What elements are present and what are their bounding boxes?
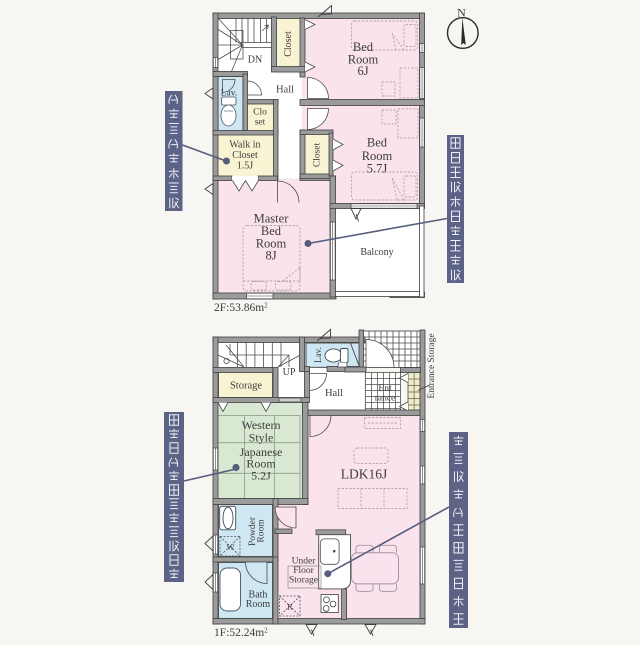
svg-text:Closet: Closet [283,31,294,57]
svg-text:1.5J: 1.5J [237,161,254,172]
svg-text:2F:53.86m2: 2F:53.86m2 [214,302,268,315]
svg-text:Ent: Ent [378,384,392,394]
svg-text:Room: Room [246,599,271,610]
svg-text:Lav.: Lav. [313,347,323,363]
svg-text:Closet: Closet [313,143,323,168]
svg-text:Bed: Bed [367,136,388,150]
svg-text:N: N [457,6,466,20]
svg-text:Walk in: Walk in [229,140,260,151]
svg-text:rance: rance [375,394,396,404]
svg-text:Floor: Floor [293,566,314,576]
svg-text:Storage: Storage [289,576,318,586]
svg-text:6J: 6J [357,64,368,78]
svg-text:Closet: Closet [232,150,258,161]
svg-text:8J: 8J [265,249,276,263]
svg-text:set: set [255,118,266,128]
svg-text:LDK16J: LDK16J [341,467,388,482]
svg-text:Under: Under [292,557,317,567]
svg-text:Balcony: Balcony [360,247,393,258]
svg-text:Storage: Storage [230,381,262,392]
svg-text:Entrance Storage: Entrance Storage [427,333,437,398]
svg-text:Hall: Hall [276,85,294,96]
svg-text:R: R [287,602,293,612]
svg-text:5.2J: 5.2J [251,469,271,483]
svg-text:5.7J: 5.7J [367,162,388,176]
svg-text:DN: DN [248,55,262,66]
svg-text:Room: Room [257,519,267,543]
svg-text:W: W [226,542,234,552]
svg-text:Style: Style [249,431,274,445]
svg-text:Hall: Hall [325,388,343,399]
svg-text:UP: UP [283,367,296,378]
svg-text:Clo: Clo [253,108,267,118]
svg-text:1F:52.24m2: 1F:52.24m2 [214,627,268,640]
